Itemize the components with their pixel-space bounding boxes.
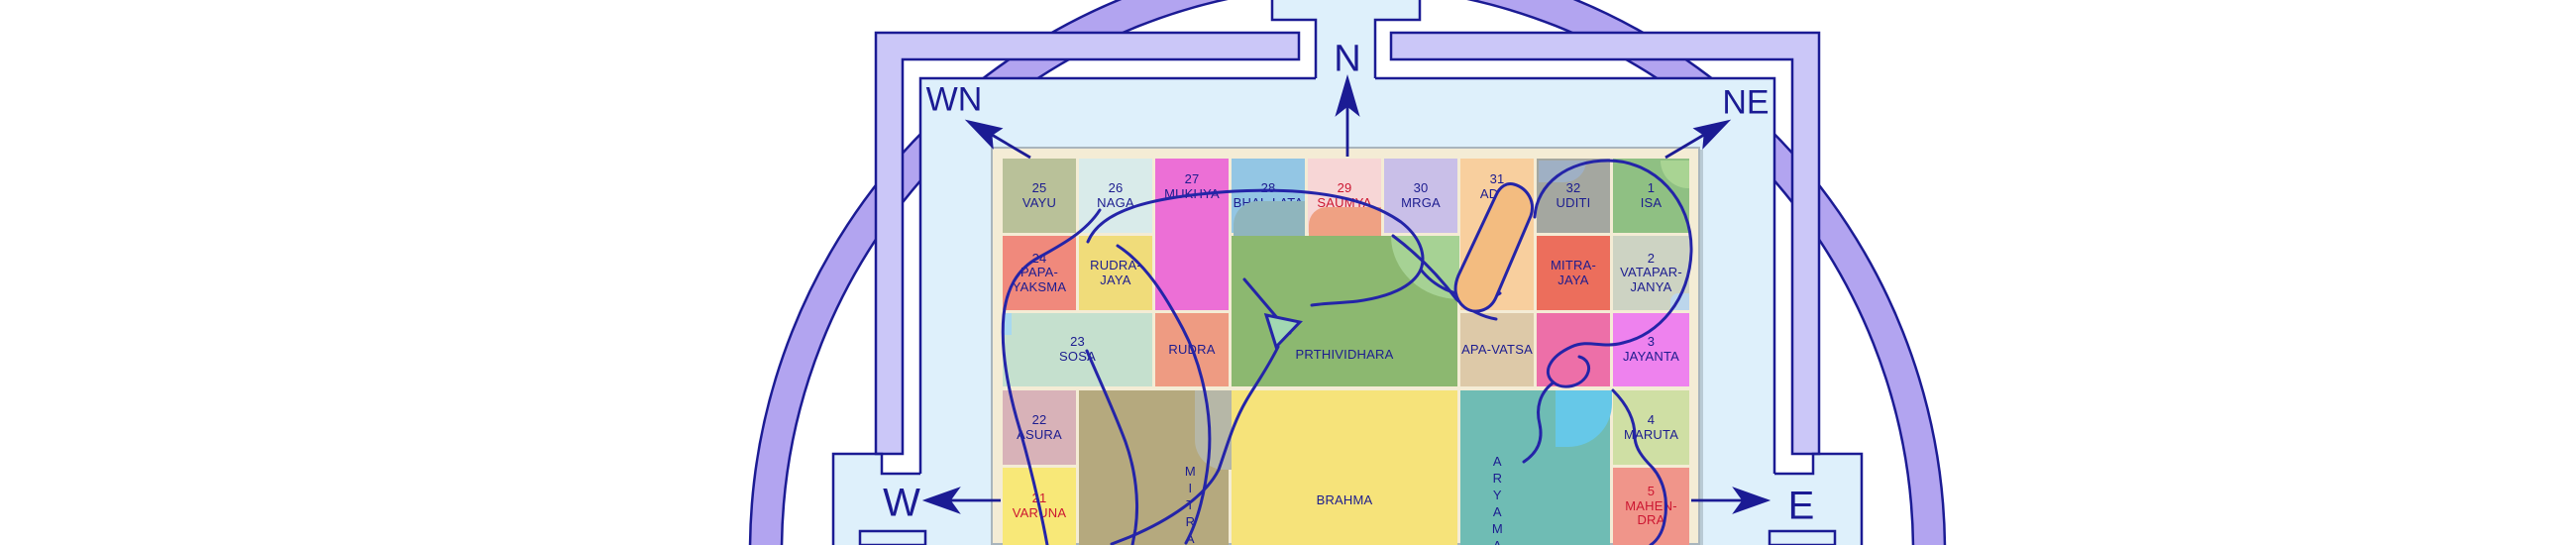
east-arrow-icon	[1691, 490, 1767, 511]
compass-label-north: N	[1334, 39, 1360, 81]
compass-label-east: E	[1788, 485, 1815, 529]
north-arrow-icon	[1338, 79, 1357, 157]
compass-label-westnorth: WN	[926, 81, 983, 120]
westnorth-arrow-icon	[969, 122, 1030, 158]
vastu-mandala-diagram: 25VAYU26NAGA27MUKHYA28BHAL-LATA29SAUMYA3…	[0, 0, 2576, 545]
purusha-hand-icon	[1455, 183, 1532, 311]
compass-label-northeast: NE	[1722, 84, 1769, 123]
body-outline-icon	[1003, 161, 1691, 545]
northeast-arrow-icon	[1665, 122, 1727, 158]
purusha-knee-icon	[1266, 315, 1300, 347]
purusha-body-outline	[0, 0, 2576, 545]
compass-label-west: W	[883, 482, 920, 526]
west-arrow-icon	[926, 490, 1001, 511]
